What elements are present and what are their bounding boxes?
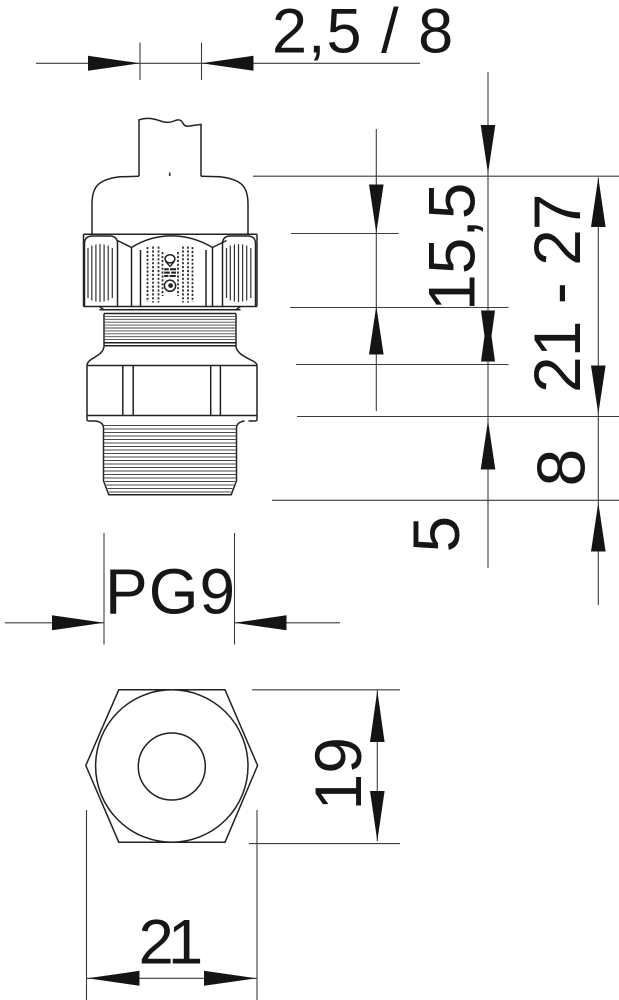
svg-text:8: 8 [524, 449, 600, 487]
svg-text:PG9: PG9 [105, 556, 236, 628]
svg-text:21: 21 [139, 907, 201, 977]
svg-text:19: 19 [301, 737, 375, 810]
svg-text:5: 5 [399, 516, 473, 553]
svg-text:2,5 / 8: 2,5 / 8 [272, 0, 454, 67]
svg-text:21 - 27: 21 - 27 [520, 195, 594, 393]
svg-text:15,5: 15,5 [415, 183, 489, 311]
